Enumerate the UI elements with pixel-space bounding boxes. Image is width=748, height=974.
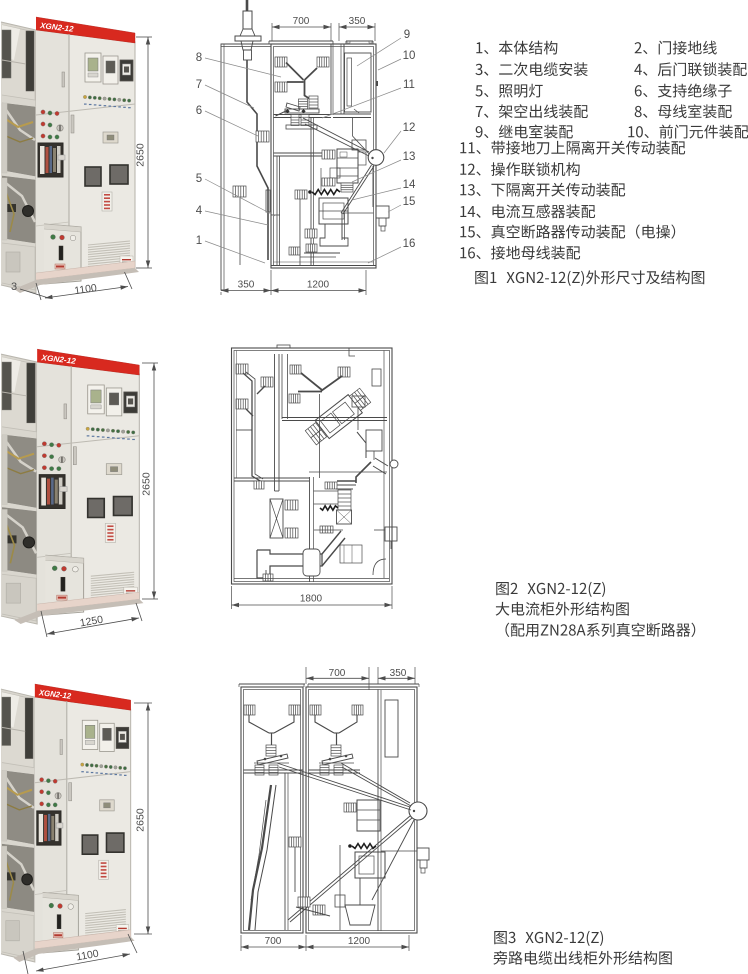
svg-text:700: 700	[329, 668, 346, 679]
svg-text:5: 5	[196, 173, 202, 185]
svg-text:11: 11	[403, 79, 415, 91]
svg-text:14: 14	[403, 179, 416, 191]
svg-text:3: 3	[11, 281, 17, 293]
svg-text:1200: 1200	[307, 280, 330, 291]
svg-text:2650: 2650	[141, 472, 153, 496]
svg-text:2650: 2650	[135, 143, 147, 167]
svg-text:9: 9	[404, 29, 410, 41]
svg-text:8: 8	[196, 52, 202, 64]
svg-text:6: 6	[196, 105, 202, 117]
svg-text:4: 4	[196, 205, 203, 217]
svg-text:15: 15	[403, 196, 416, 208]
svg-text:13: 13	[403, 151, 416, 163]
svg-text:1: 1	[196, 235, 202, 247]
svg-text:2650: 2650	[135, 808, 147, 832]
svg-text:700: 700	[265, 936, 282, 947]
svg-text:350: 350	[349, 16, 366, 27]
svg-text:7: 7	[196, 79, 202, 91]
svg-text:1250: 1250	[79, 614, 104, 630]
svg-text:1800: 1800	[300, 594, 323, 605]
svg-text:350: 350	[390, 668, 407, 679]
svg-text:12: 12	[403, 122, 416, 134]
svg-text:700: 700	[293, 16, 310, 27]
svg-text:350: 350	[238, 280, 255, 291]
svg-text:1100: 1100	[74, 282, 98, 297]
svg-text:1200: 1200	[348, 936, 371, 947]
svg-text:10: 10	[403, 50, 416, 62]
svg-text:1100: 1100	[75, 948, 100, 964]
svg-text:16: 16	[403, 238, 416, 250]
